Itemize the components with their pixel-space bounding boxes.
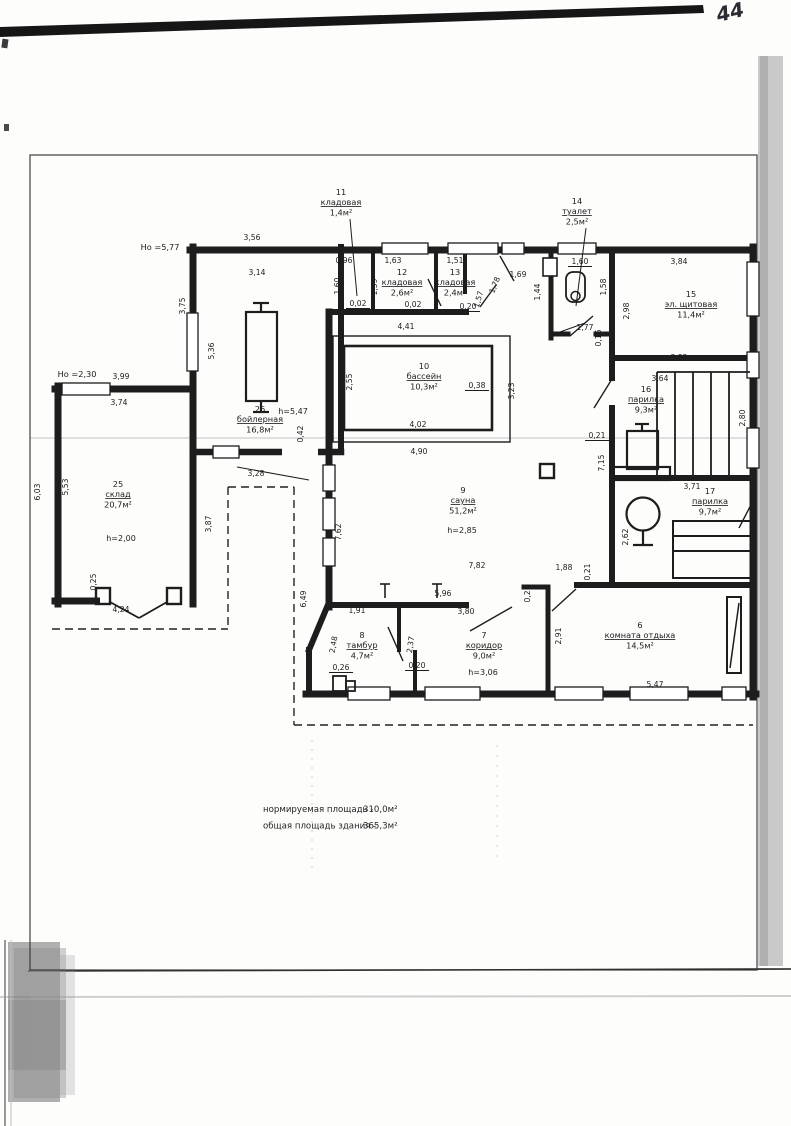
window (323, 538, 335, 566)
dimension-label: 0,02 (350, 299, 367, 308)
room-name: склад (105, 489, 131, 499)
room-number: 15 (686, 289, 696, 299)
stove-symbol (627, 424, 658, 469)
dimension-label: 3,23 (507, 382, 516, 399)
door-leaf (594, 379, 612, 408)
room-name: комната отдыха (605, 630, 676, 640)
dimension-label: 1,77 (577, 323, 594, 332)
room-area: 20,7м² (104, 500, 132, 510)
dimension-label: 3,87 (204, 515, 213, 532)
height-label: h=2,00 (106, 534, 136, 543)
room-area: 2,6м² (391, 288, 413, 298)
dimension-label: 0,26 (333, 663, 350, 672)
dimension-label: 3,64 (652, 374, 669, 383)
window (555, 687, 603, 700)
window (747, 428, 759, 468)
dimension-label: 5,47 (647, 680, 664, 689)
scan-left-tick1 (1, 39, 8, 49)
dimension-label: 3,28 (248, 469, 265, 478)
font-circle-symbol (627, 498, 660, 546)
window (187, 313, 198, 371)
page-number: 44 (713, 0, 747, 27)
dimension-label: 1,51 (447, 256, 464, 265)
room-number: 12 (397, 267, 407, 277)
dimension-label: 0,21 (523, 585, 532, 602)
room-name: тамбур (346, 640, 377, 650)
dimension-label: 5,96 (435, 589, 452, 598)
height-label: h=3,06 (468, 668, 498, 677)
wall-openings (100, 247, 596, 608)
window (213, 446, 239, 458)
dimension-label: 5,36 (207, 342, 216, 359)
window (425, 687, 480, 700)
dimension-label: 0,42 (296, 425, 305, 442)
dimension-label: 0,16 (594, 329, 603, 346)
room-area: 9,0м² (473, 651, 495, 661)
dimension-label: 2,55 (345, 373, 354, 390)
dimension-label: 3,75 (178, 297, 187, 314)
dimension-label: 4,41 (398, 322, 415, 331)
elevation-mark: Но =2,30 (58, 369, 97, 379)
room-area: 14,5м² (626, 641, 654, 651)
toilet-niche (543, 258, 557, 276)
dimension-label: 3,80 (458, 607, 475, 616)
room-number: 10 (419, 361, 429, 371)
scanned-floor-plan-page: 3,563,140,961,631,511,691,603,841,601,59… (0, 0, 791, 1126)
dimension-label: 2,80 (738, 409, 747, 426)
room-area: 16,8м² (246, 425, 274, 435)
dimension-label: 4,02 (410, 420, 427, 429)
dimension-label: 0,20 (409, 661, 426, 670)
dimension-label: 2,62 (621, 528, 630, 545)
dimension-label: 0,38 (469, 381, 486, 390)
room-number: 8 (359, 630, 364, 640)
dimension-label: 7,62 (334, 523, 343, 540)
room-number: 13 (450, 267, 460, 277)
scan-right-band-dark (760, 56, 768, 966)
room-area: 2,4м² (444, 288, 466, 298)
room-number: 14 (572, 196, 582, 206)
dimension-label: 1,69 (510, 270, 527, 279)
boiler-tank-symbol (246, 303, 277, 412)
room-number: 16 (641, 384, 651, 394)
dimension-label: 3,74 (111, 398, 128, 407)
dimension-label: 3,56 (244, 233, 261, 242)
room-name: сауна (451, 495, 476, 505)
room-name: бойлерная (237, 414, 283, 424)
dimension-label: 6,49 (299, 590, 308, 607)
dimension-label: 4,90 (411, 447, 428, 456)
scan-top-edge (0, 5, 704, 37)
room-area: 51,2м² (449, 506, 477, 516)
dimension-label: 3,84 (671, 257, 688, 266)
area-notes: нормируемая площадь -310,0м²общая площад… (263, 805, 398, 832)
dimension-label: 1,60 (572, 257, 589, 266)
window (747, 262, 759, 316)
room-number: 11 (336, 187, 346, 197)
dimension-label: 3,71 (684, 482, 701, 491)
dimension-label: 1,59 (370, 278, 379, 295)
dimension-label: 3,82 (671, 353, 688, 362)
room-number: 17 (705, 486, 715, 496)
room-area: 9,3м² (635, 405, 657, 415)
room-name: туалет (562, 206, 592, 216)
dimension-label: 0,02 (405, 300, 422, 309)
door-unit-room6 (727, 597, 741, 673)
note-label: нормируемая площадь - (263, 805, 373, 815)
dimension-label: 1,88 (556, 563, 573, 572)
door-leaf (552, 589, 576, 611)
dimension-label: 4,24 (113, 605, 130, 614)
room-area: 10,3м² (410, 382, 438, 392)
dimension-label: 0,20 (460, 302, 477, 311)
room-area: 1,4м² (330, 208, 352, 218)
toilet-symbol (566, 272, 585, 302)
dimension-label: 1,44 (533, 283, 542, 300)
ceiling-square-symbol (540, 464, 554, 478)
note-value: 310,0м² (363, 805, 398, 815)
dimension-label: 3,14 (249, 268, 266, 277)
dimension-label: 7,82 (469, 561, 486, 570)
bench-steps-room17 (673, 521, 753, 578)
room-name: коридор (466, 640, 502, 650)
note-value: 365,3м² (363, 822, 398, 832)
room-number: 26 (255, 404, 265, 414)
dimension-label: 1,58 (599, 278, 608, 295)
dimension-label: 2,91 (554, 627, 563, 644)
dimension-label: 7,15 (597, 454, 606, 471)
dimension-label: 1,60 (333, 277, 342, 294)
elevation-mark: Но =5,77 (141, 242, 180, 252)
room-area: 11,4м² (677, 310, 705, 320)
window (722, 687, 746, 700)
dimension-label: 1,91 (349, 606, 366, 615)
door-post-symbols (380, 584, 442, 598)
room-name: эл. щитовая (665, 299, 718, 309)
height-label: h=2,85 (447, 526, 477, 535)
dimension-label: 1,63 (385, 256, 402, 265)
room-area: 4,7м² (351, 651, 373, 661)
room-name: кладовая (382, 277, 423, 287)
staircase (657, 372, 750, 475)
dimension-label: 0,25 (89, 573, 98, 590)
dimension-label: 0,21 (589, 431, 606, 440)
room-number: 7 (481, 630, 486, 640)
scan-bottom-faint-line (0, 996, 791, 997)
dimension-label: 6,03 (33, 483, 42, 500)
dimension-label: 0,21 (583, 563, 592, 580)
dimension-label: 3,99 (113, 372, 130, 381)
door-leaf (470, 607, 512, 631)
scan-left-tick2 (4, 124, 9, 131)
window (382, 243, 428, 254)
room-number: 9 (460, 485, 465, 495)
room-name: бассейн (407, 371, 442, 381)
dimension-label: 2,48 (328, 635, 340, 653)
room-number: 25 (113, 479, 123, 489)
dimension-label: 5,53 (61, 478, 70, 495)
room-number: 6 (637, 620, 642, 630)
room-name: кладовая (321, 197, 362, 207)
dimension-label: 1,78 (487, 275, 502, 294)
window (747, 352, 759, 378)
window (502, 243, 524, 254)
room-name: парилка (628, 394, 664, 404)
note-label: общая площадь здания - (263, 822, 376, 832)
window (62, 383, 110, 395)
window (323, 465, 335, 491)
scan-bottom-left-noise (5, 940, 75, 1126)
room-area: 2,5м² (566, 217, 588, 227)
window (558, 243, 596, 254)
room-name: парилка (692, 496, 728, 506)
window (448, 243, 498, 254)
room-area: 9,7м² (699, 507, 721, 517)
dimension-label: 0,96 (336, 256, 353, 265)
dimension-label: 2,98 (622, 302, 631, 319)
room-name: кладовая (435, 277, 476, 287)
